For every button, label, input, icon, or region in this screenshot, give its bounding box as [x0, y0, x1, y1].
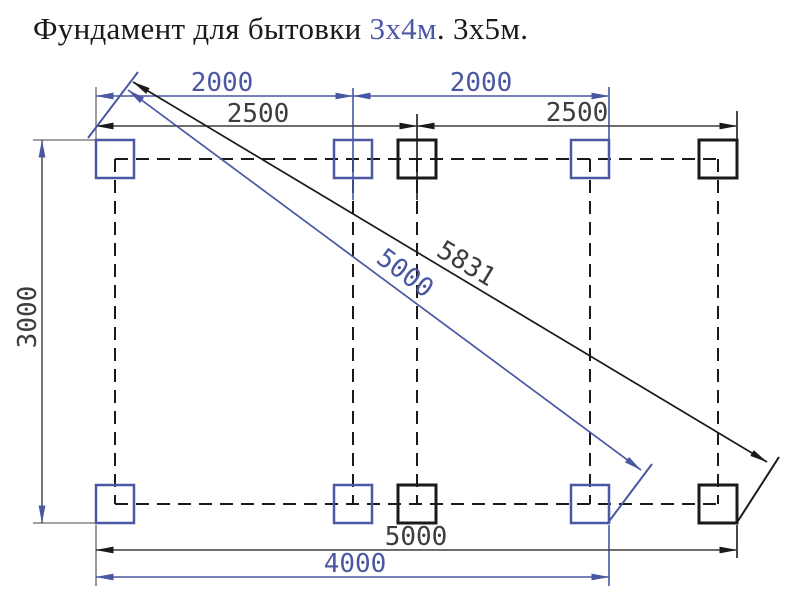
tick-slash-bottom-black — [736, 457, 779, 524]
dimension-label-2000-left: 2000 — [191, 68, 254, 98]
dimension-line-diagonal-5831 — [133, 82, 767, 462]
dimension-label-2500-right: 2500 — [546, 98, 609, 128]
dimension-label-2000-right: 2000 — [450, 68, 513, 98]
dimension-label-5000: 5000 — [385, 522, 448, 552]
dimension-label-4000: 4000 — [324, 549, 387, 579]
foundation-drawing: Фундамент для бытовки 3х4м. 3х5м. — [0, 0, 800, 603]
extension-lines — [33, 87, 737, 586]
dimension-label-5831: 5831 — [432, 235, 501, 293]
dimension-label-2500-left: 2500 — [227, 99, 290, 129]
dimension-height-3000: 3000 — [13, 140, 43, 523]
tick-slash-bottom-blue — [607, 464, 652, 524]
dimension-bottom-row: 5000 4000 — [96, 522, 737, 579]
axis-centerlines — [115, 159, 718, 504]
posts-3x5-black — [398, 140, 737, 523]
dimension-line-diagonal-5000 — [128, 90, 641, 470]
dimension-label-3000: 3000 — [13, 286, 43, 349]
foundation-plan-svg: 2000 2000 2500 2500 3000 5831 5000 — [0, 0, 800, 603]
